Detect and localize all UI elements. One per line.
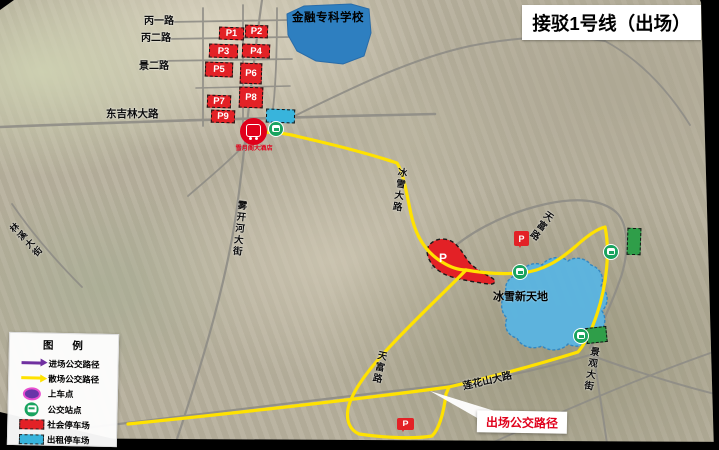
parking-flag-south: P: [397, 418, 414, 430]
school-label: 金融专科学校: [292, 9, 364, 25]
road-bingyi: [170, 20, 290, 22]
exit-route-loop: [347, 270, 466, 438]
road-label: 丙一路: [144, 12, 174, 27]
taxi-parking-rect: [266, 108, 295, 123]
parking-lot-2: P2: [245, 25, 268, 39]
parking-blob-label: P: [435, 251, 451, 265]
parking-lot-1: P1: [219, 27, 244, 41]
venue-label: 冰雪新天地: [493, 288, 548, 304]
boarding-bus-icon: [240, 118, 267, 145]
legend-item: 公交站点: [15, 401, 111, 418]
bus-stop-icon: [573, 328, 589, 344]
road-se1: [590, 355, 719, 395]
exit-route-callout: 出场公交路径: [477, 410, 567, 434]
parking-flag-north: P: [514, 231, 529, 246]
page-title: 接驳1号线（出场）: [522, 5, 701, 40]
boarding-point-icon: [23, 387, 41, 400]
bus-stop-icon: [268, 121, 284, 137]
legend-item-label: 上车点: [48, 388, 74, 401]
map-stage: 金融专科学校 冰雪新天地 P P P 雪月阁大酒店 出场公交路径 图 例 进场公…: [0, 0, 719, 450]
satellite-map[interactable]: 金融专科学校 冰雪新天地 P P P 雪月阁大酒店 出场公交路径 图 例 进场公…: [0, 0, 719, 450]
road-label: 东吉林大路: [106, 106, 159, 121]
legend-item-label: 进场公交路径: [48, 357, 99, 370]
legend-item-label: 散场公交路径: [48, 373, 99, 386]
parking-lot-7: P7: [207, 95, 231, 109]
road-grid-v3: [271, 8, 277, 123]
arrow-yellow-icon: [21, 377, 43, 380]
taxi-parking-icon: [18, 434, 43, 445]
legend-item-label: 公交站点: [47, 403, 81, 416]
legend: 图 例 进场公交路径散场公交路径上车点公交站点社会停车场出租停车场: [7, 332, 119, 447]
parking-lot-6: P6: [240, 63, 263, 85]
legend-item-label: 出租停车场: [47, 434, 90, 447]
road-topright: [605, 41, 690, 125]
parking-lot-4: P4: [242, 44, 270, 59]
green-parking-rect-east: [627, 228, 642, 255]
road-label: 景二路: [139, 57, 169, 72]
parking-lot-8: P8: [239, 87, 264, 109]
legend-title: 图 例: [21, 337, 113, 354]
parking-lot-3: P3: [209, 43, 238, 58]
bus-stop-icon: [603, 244, 619, 260]
bus-stop-icon: [24, 402, 38, 416]
parking-lot-9: P9: [211, 110, 235, 124]
arrow-purple-icon: [22, 361, 44, 364]
road-label: 丙二路: [141, 29, 171, 44]
road-jinger: [158, 59, 292, 61]
public-parking-icon: [19, 419, 44, 430]
legend-item-label: 社会停车场: [47, 419, 90, 432]
bus-stop-icon: [512, 264, 528, 280]
legend-rows: 进场公交路径散场公交路径上车点公交站点社会停车场出租停车场: [15, 355, 113, 449]
parking-lot-5: P5: [205, 62, 234, 78]
boarding-stop-name: 雪月阁大酒店: [230, 142, 278, 152]
legend-item: 出租停车场: [15, 431, 111, 448]
